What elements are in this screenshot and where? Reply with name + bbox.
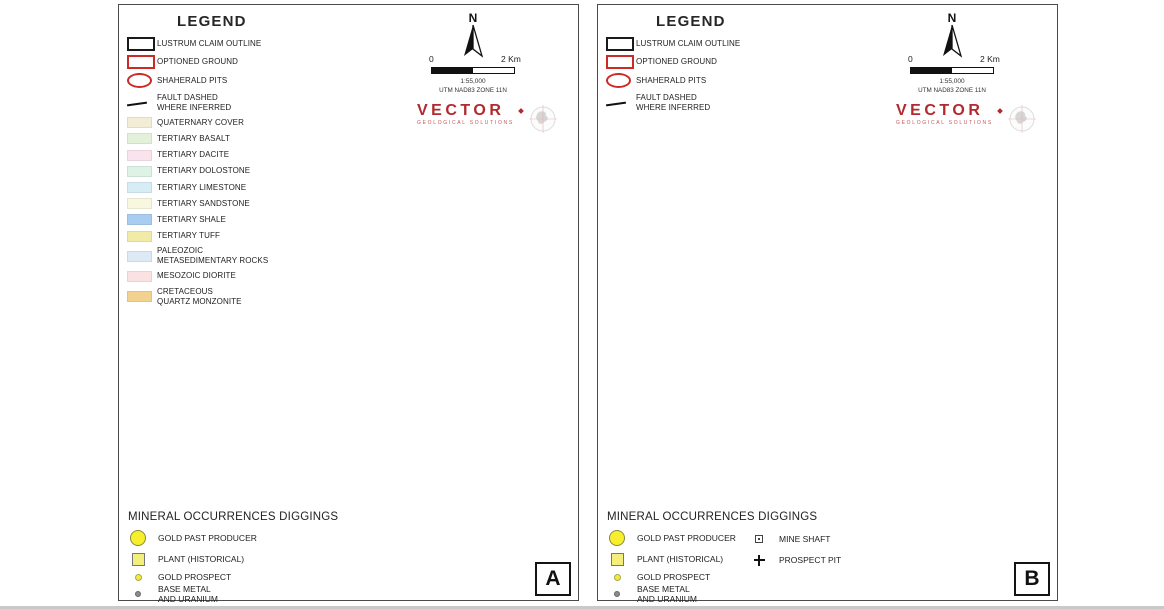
shaherald-pits-swatch [604,73,636,88]
geology-label: TERTIARY SHALE [157,215,226,225]
occurrence-label: BASE METAL AND URANIUM [637,584,697,604]
geology-label: CRETACEOUS QUARTZ MONZONITE [157,287,242,307]
legend-label: LUSTRUM CLAIM OUTLINE [636,39,740,49]
scale-bar [431,67,515,74]
geology-color-swatch [127,150,152,161]
occurrences-legend-b: MINERAL OCCURRENCES DIGGINGS GOLD PAST P… [607,511,1052,608]
gold-prospect-icon [607,574,627,581]
gold-past-producer-icon [128,530,148,546]
occurrence-item-base-metal: BASE METAL AND URANIUM [128,585,573,603]
legend-title: LEGEND [177,13,337,30]
geology-label: TERTIARY SANDSTONE [157,199,250,209]
occurrences-title: MINERAL OCCURRENCES DIGGINGS [128,511,573,523]
occurrence-label: PLANT (HISTORICAL) [637,554,723,564]
base-metal-icon [128,591,148,597]
occurrence-label: GOLD PROSPECT [158,572,231,582]
occurrence-label: PLANT (HISTORICAL) [158,554,244,564]
map-meta-a: N 0 2 Km 1:55,000 UTM NAD83 ZONE 11N VEC… [417,11,569,143]
occurrences-title: MINERAL OCCURRENCES DIGGINGS [607,511,1052,523]
vector-logo-name: VECTOR [417,103,514,119]
mine-shaft-icon [749,535,769,543]
north-arrow-icon [461,24,485,58]
geology-legend-item: TERTIARY SANDSTONE [125,198,337,210]
map-meta-b: N 0 2 Km 1:55,000 UTM NAD83 ZONE 11N VEC… [896,11,1048,143]
compass-globe-icon [528,103,558,135]
geology-color-swatch [127,251,152,262]
geology-color-swatch [127,198,152,209]
geology-legend-item: TERTIARY LIMESTONE [125,182,337,194]
geology-label: TERTIARY BASALT [157,134,230,144]
compass-globe-icon [1007,103,1037,135]
geology-legend-item: PALEOZOIC METASEDIMENTARY ROCKS [125,246,337,266]
geology-label: PALEOZOIC METASEDIMENTARY ROCKS [157,246,268,266]
figure-page: LEGEND LUSTRUM CLAIM OUTLINE OPTIONED GR… [0,0,1164,609]
vector-logo: VECTOR GEOLOGICAL SOLUTIONS [417,103,558,135]
geology-legend-item: TERTIARY DOLOSTONE [125,165,337,177]
legend-title: LEGEND [656,13,816,30]
optioned-ground-swatch [604,55,636,69]
geology-label: TERTIARY DOLOSTONE [157,166,250,176]
geology-label: TERTIARY TUFF [157,231,220,241]
scale-km-label: 2 Km [501,54,521,64]
geology-label: MESOZOIC DIORITE [157,271,236,281]
plant-icon [607,553,627,566]
plant-icon [128,553,148,566]
geology-color-swatch [127,182,152,193]
north-label: N [940,11,964,25]
occurrence-item-plant: PLANT (HISTORICAL) [128,551,573,567]
occurrence-label: PROSPECT PIT [779,555,841,565]
scale-datum-label: UTM NAD83 ZONE 11N [417,87,529,94]
occurrence-label: BASE METAL AND URANIUM [158,584,218,604]
scale-zero-label: 0 [429,54,434,64]
vector-logo-subtitle: GEOLOGICAL SOLUTIONS [896,120,993,126]
panel-a-geology-map: LEGEND LUSTRUM CLAIM OUTLINE OPTIONED GR… [118,4,579,601]
fault-line-swatch [125,100,157,105]
geology-label: TERTIARY DACITE [157,150,229,160]
geology-legend-item: TERTIARY DACITE [125,149,337,161]
scale-ratio-label: 1:55,000 [417,78,529,85]
legend-item-optioned-ground: OPTIONED GROUND [604,55,816,69]
occurrence-label: GOLD PROSPECT [637,572,710,582]
geology-legend-item: TERTIARY TUFF [125,230,337,242]
panel-a-tag: A [535,562,571,596]
occurrences-legend-column-2: MINE SHAFT PROSPECT PIT [749,531,841,573]
geology-legend-list: QUATERNARY COVER TERTIARY BASALT TERTIAR… [125,117,337,307]
legend-item-claim-outline: LUSTRUM CLAIM OUTLINE [604,37,816,51]
optioned-ground-swatch [125,55,157,69]
shaherald-pits-swatch [125,73,157,88]
geology-label: TERTIARY LIMESTONE [157,183,246,193]
occurrence-item-prospect-pit: PROSPECT PIT [749,552,841,568]
fault-line-swatch [604,100,636,105]
gold-prospect-icon [128,574,148,581]
north-label: N [461,11,485,25]
geology-color-swatch [127,231,152,242]
legend-label: OPTIONED GROUND [157,57,238,67]
geology-legend-item: TERTIARY SHALE [125,214,337,226]
occurrence-label: GOLD PAST PRODUCER [158,533,257,543]
legend-a: LEGEND LUSTRUM CLAIM OUTLINE OPTIONED GR… [125,13,337,311]
legend-item-optioned-ground: OPTIONED GROUND [125,55,337,69]
legend-item-claim-outline: LUSTRUM CLAIM OUTLINE [125,37,337,51]
legend-label: OPTIONED GROUND [636,57,717,67]
legend-label: FAULT DASHED WHERE INFERRED [157,93,231,113]
legend-label: SHAHERALD PITS [157,76,227,86]
geology-color-swatch [127,271,152,282]
geology-color-swatch [127,117,152,128]
legend-label: FAULT DASHED WHERE INFERRED [636,93,710,113]
occurrence-item-gold-past-producer: GOLD PAST PRODUCER [128,530,573,546]
logo-diamond-icon [997,108,1003,114]
panel-b-tag: B [1014,562,1050,596]
legend-item-shaherald-pits: SHAHERALD PITS [604,73,816,88]
occurrence-item-gold-prospect: GOLD PROSPECT [128,572,573,583]
occurrence-item-gold-prospect: GOLD PROSPECT [607,572,1052,583]
occurrence-label: GOLD PAST PRODUCER [637,533,736,543]
legend-b: LEGEND LUSTRUM CLAIM OUTLINE OPTIONED GR… [604,13,816,117]
prospect-pit-icon [749,555,769,566]
scale-km-label: 2 Km [980,54,1000,64]
base-metal-icon [607,591,627,597]
vector-logo: VECTOR GEOLOGICAL SOLUTIONS [896,103,1037,135]
geology-legend-item: CRETACEOUS QUARTZ MONZONITE [125,287,337,307]
panel-b-diggings-map: LEGEND LUSTRUM CLAIM OUTLINE OPTIONED GR… [597,4,1058,601]
geology-color-swatch [127,214,152,225]
occurrence-item-mine-shaft: MINE SHAFT [749,531,841,547]
geology-color-swatch [127,133,152,144]
legend-label: LUSTRUM CLAIM OUTLINE [157,39,261,49]
geology-legend-item: QUATERNARY COVER [125,117,337,129]
geology-legend-item: MESOZOIC DIORITE [125,270,337,282]
claim-outline-swatch [125,37,157,51]
logo-diamond-icon [518,108,524,114]
legend-item-fault: FAULT DASHED WHERE INFERRED [125,93,337,113]
claim-outline-swatch [604,37,636,51]
north-arrow-icon [940,24,964,58]
vector-logo-name: VECTOR [896,103,993,119]
scale-zero-label: 0 [908,54,913,64]
occurrence-item-base-metal: BASE METAL AND URANIUM [607,585,1052,603]
geology-color-swatch [127,166,152,177]
gold-past-producer-icon [607,530,627,546]
vector-logo-subtitle: GEOLOGICAL SOLUTIONS [417,120,514,126]
geology-legend-item: TERTIARY BASALT [125,133,337,145]
geology-label: QUATERNARY COVER [157,118,244,128]
legend-label: SHAHERALD PITS [636,76,706,86]
legend-item-shaherald-pits: SHAHERALD PITS [125,73,337,88]
legend-item-fault: FAULT DASHED WHERE INFERRED [604,93,816,113]
scale-ratio-label: 1:55,000 [896,78,1008,85]
occurrences-legend-a: MINERAL OCCURRENCES DIGGINGS GOLD PAST P… [128,511,573,608]
geology-color-swatch [127,291,152,302]
occurrence-label: MINE SHAFT [779,534,830,544]
scale-bar [910,67,994,74]
scale-datum-label: UTM NAD83 ZONE 11N [896,87,1008,94]
